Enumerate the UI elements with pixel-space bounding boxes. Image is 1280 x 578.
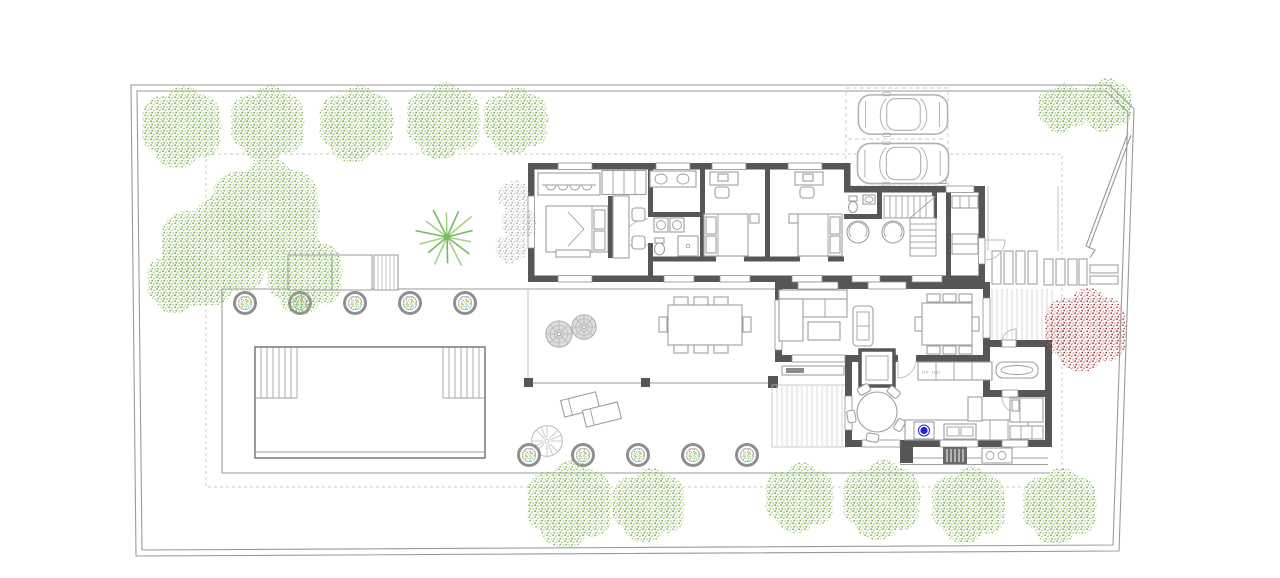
planter-pot [235, 293, 256, 314]
planter-pot [519, 445, 540, 466]
terrace-bench [782, 366, 844, 375]
spiral-shrub [546, 321, 572, 347]
guest-room-furniture [1010, 398, 1043, 439]
lounge-chair [882, 221, 904, 243]
kitchen-island [968, 397, 982, 421]
car-top-view [858, 141, 949, 186]
terrace-column [641, 378, 650, 387]
planter-pot [400, 293, 421, 314]
lounge-chair [847, 221, 869, 243]
site-plan-drawing: PF HO [0, 0, 1280, 578]
spiral-shrub [572, 315, 597, 340]
bbq-grill [982, 448, 1012, 463]
appliance-label: PF HO [922, 370, 941, 375]
car-top-view [858, 92, 947, 136]
terrace-column [768, 376, 778, 388]
planter-pot [628, 445, 649, 466]
grill-cabinet [943, 447, 967, 464]
master-bed [546, 206, 608, 257]
planter-pot [345, 293, 366, 314]
toilet [655, 238, 665, 255]
planter-pot [455, 293, 476, 314]
terrace-dining-table [659, 297, 751, 353]
master-desk [613, 196, 629, 258]
terrace-column [524, 378, 533, 387]
planter-pot [737, 445, 758, 466]
armchair [853, 306, 873, 346]
fireplace [860, 350, 894, 386]
cooktop [914, 422, 934, 439]
planter-pot [683, 445, 704, 466]
dining-room-furniture [915, 294, 979, 354]
utility-room-fixtures [996, 362, 1038, 378]
double-sink [944, 424, 976, 439]
kitchen-counter-north: PF HO [918, 362, 992, 380]
coffee-table [808, 322, 840, 340]
swimming-pool [255, 347, 485, 458]
